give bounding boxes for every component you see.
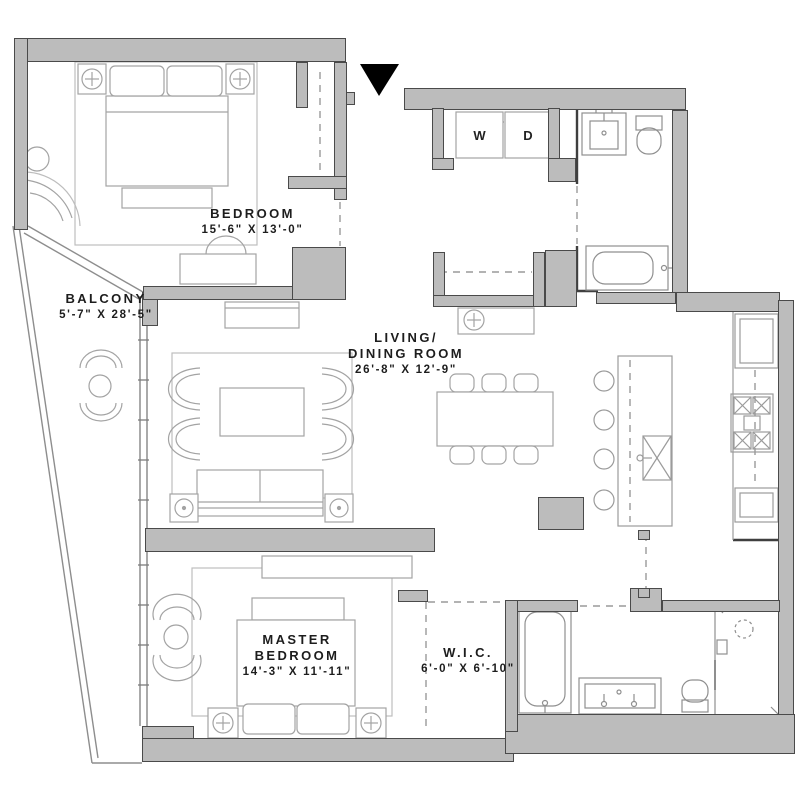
wall-segment [14, 38, 346, 62]
room-label-master-bedroom: MASTER BEDROOM 14'-3" X 11'-11" [232, 632, 362, 680]
room-label-bedroom: BEDROOM 15'-6" X 13'-0" [165, 206, 340, 238]
room-name: MASTER [232, 632, 362, 648]
room-name: DINING ROOM [342, 346, 470, 362]
wall-segment [596, 292, 676, 304]
wall-segment [778, 300, 794, 754]
room-name: BEDROOM [165, 206, 340, 222]
wall-segment [662, 600, 780, 612]
wall-segment [672, 110, 688, 302]
wall-segment [346, 92, 355, 105]
wall-segment [676, 292, 780, 312]
room-dims: 5'-7" X 28'-5" [40, 307, 172, 323]
wall-segment [404, 88, 686, 110]
room-dims: 14'-3" X 11'-11" [232, 664, 362, 680]
room-label-living-dining: LIVING/ DINING ROOM 26'-8" X 12'-9" [342, 330, 470, 378]
room-dims: 6'-0" X 6'-10" [407, 661, 529, 677]
room-label-balcony: BALCONY 5'-7" X 28'-5" [40, 291, 172, 323]
wall-segment [638, 530, 650, 540]
bathroom-fixtures [582, 108, 676, 290]
room-name: BEDROOM [232, 648, 362, 664]
wall-segment [638, 588, 650, 598]
floor-plan: BEDROOM 15'-6" X 13'-0" BALCONY 5'-7" X … [0, 0, 800, 800]
wall-segment [142, 738, 514, 762]
room-name: LIVING/ [342, 330, 470, 346]
dining-furniture [437, 374, 553, 464]
wall-segment [533, 252, 545, 307]
wall-segment [14, 38, 28, 230]
wall-segment [398, 590, 428, 602]
dryer-label: D [505, 128, 551, 143]
window-wall [138, 296, 149, 726]
wall-segment [505, 714, 795, 754]
entry-marker-icon [360, 64, 399, 96]
kitchen-fixtures [594, 312, 778, 540]
wall-segment [548, 158, 576, 182]
room-dims: 26'-8" X 12'-9" [342, 362, 470, 378]
room-name: BALCONY [40, 291, 172, 307]
room-dims: 15'-6" X 13'-0" [165, 222, 340, 238]
room-name: W.I.C. [407, 645, 529, 661]
wall-segment [145, 528, 435, 552]
wall-segment [288, 176, 347, 189]
wall-segment [433, 295, 545, 307]
bedroom-furniture [24, 62, 257, 284]
washer-label: W [456, 128, 503, 143]
wall-segment [292, 247, 346, 300]
balcony-furniture [80, 350, 122, 421]
master-bathroom-fixtures [519, 605, 779, 715]
wall-segment [432, 158, 454, 170]
living-room-furniture [169, 302, 354, 522]
room-label-wic: W.I.C. 6'-0" X 6'-10" [407, 645, 529, 677]
wall-segment [545, 250, 577, 307]
wall-segment [296, 62, 308, 108]
wall-segment [538, 497, 584, 530]
